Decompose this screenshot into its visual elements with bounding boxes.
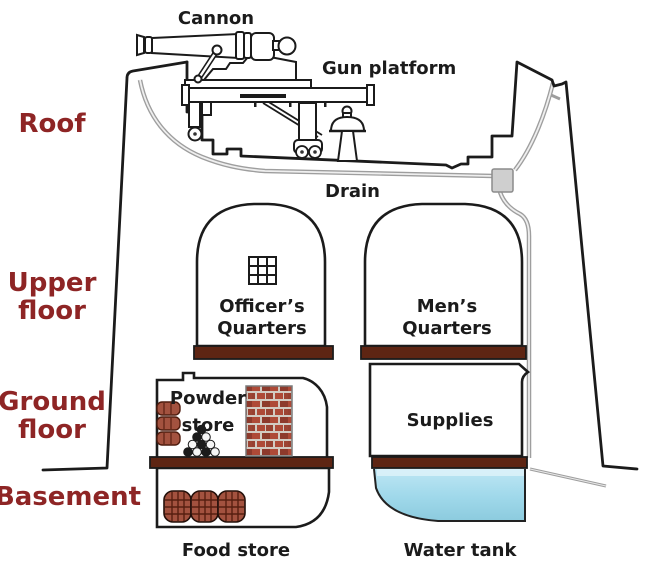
cannon-label: Cannon	[178, 8, 254, 29]
water-tank	[374, 469, 525, 521]
food-store-barrels	[164, 491, 245, 522]
powder-store-label-line2: store	[182, 415, 235, 436]
water-surface	[377, 469, 524, 476]
roof-label: Roof	[18, 109, 86, 139]
diagram-canvas: Roof Upper floor Ground floor Basement C…	[0, 0, 646, 563]
ground-floor-label-line1: Ground	[0, 387, 106, 417]
officers-quarters-label-line2: Quarters	[217, 318, 307, 339]
basement-label: Basement	[0, 482, 141, 512]
tower-cross-section-diagram: Roof Upper floor Ground floor Basement C…	[0, 0, 646, 563]
ground-floor-label-line2: floor	[18, 415, 86, 445]
window-grate-icon	[249, 257, 276, 284]
officers-quarters-label-line1: Officer’s	[219, 296, 304, 317]
upper-floor-label-line2: floor	[18, 296, 86, 326]
powder-floor-slab	[150, 457, 333, 468]
drain-spout	[551, 95, 560, 99]
gun-carriage	[204, 57, 296, 80]
cannon-muzzle	[137, 35, 144, 55]
supplies-label: Supplies	[407, 410, 494, 431]
cascabel-knob	[279, 38, 296, 55]
ventilator-illustration	[329, 107, 366, 162]
drain-box	[492, 169, 513, 192]
drain-label: Drain	[325, 181, 380, 202]
mens-quarters-label-line1: Men’s	[417, 296, 478, 317]
platform-pivot	[294, 103, 322, 158]
upper-floor-label-line1: Upper	[8, 268, 97, 298]
food-store-label: Food store	[182, 540, 290, 561]
powder-store-label-line1: Powder	[170, 388, 246, 409]
gun-platform-label: Gun platform	[322, 58, 456, 79]
cannon-barrel	[152, 34, 238, 58]
cannon-breech	[251, 33, 274, 60]
mens-floor-slab	[361, 346, 526, 359]
officers-floor-slab	[194, 346, 333, 359]
platform-front-truck	[189, 102, 212, 141]
mens-quarters-label-line2: Quarters	[402, 318, 492, 339]
cannon-illustration	[137, 32, 296, 83]
water-tank-label: Water tank	[404, 540, 518, 561]
brick-stack	[246, 386, 292, 456]
supplies-floor-slab	[372, 457, 527, 468]
